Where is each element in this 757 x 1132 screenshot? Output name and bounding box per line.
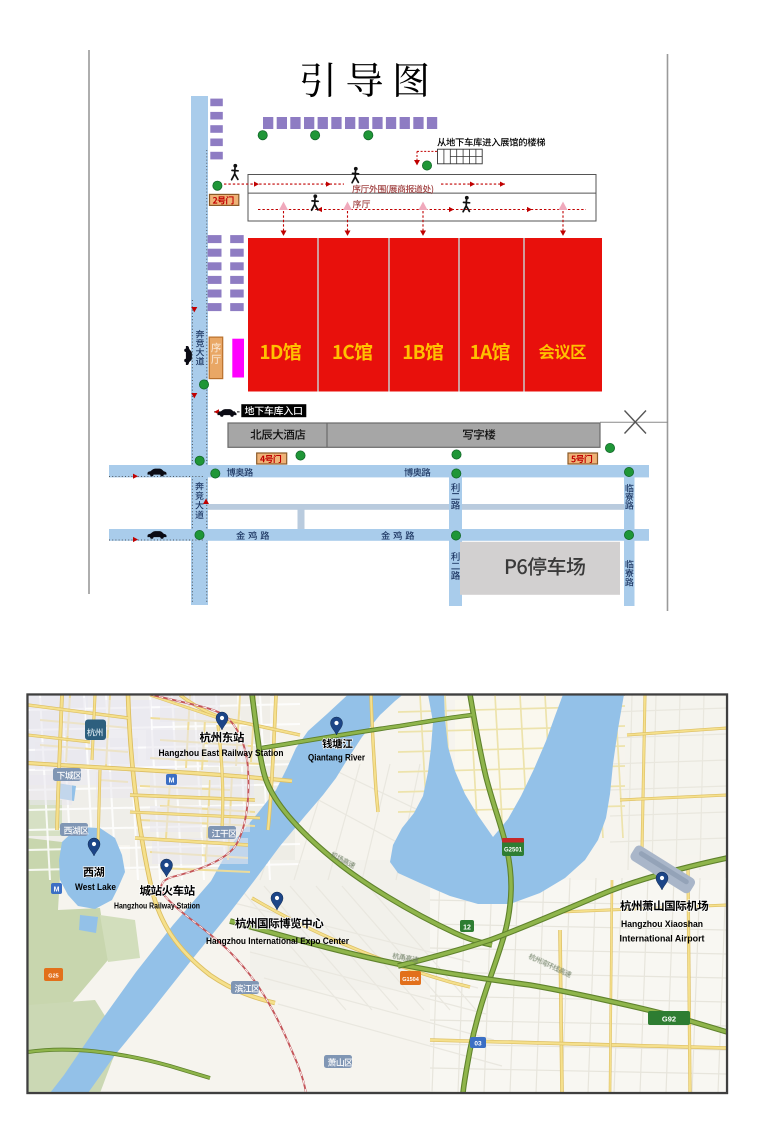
- svg-text:G2501: G2501: [504, 848, 523, 854]
- svg-text:12: 12: [463, 925, 471, 932]
- svg-text:Hangzhou Railway Station: Hangzhou Railway Station: [114, 901, 200, 911]
- svg-text:Qiantang River: Qiantang River: [308, 753, 365, 763]
- svg-text:03: 03: [474, 1041, 482, 1048]
- svg-text:International Airport: International Airport: [620, 934, 706, 945]
- svg-text:M: M: [54, 887, 60, 894]
- svg-text:G25: G25: [48, 974, 58, 980]
- svg-text:Hangzhou Xiaoshan: Hangzhou Xiaoshan: [621, 919, 703, 930]
- svg-text:Hangzhou International Expo Ce: Hangzhou International Expo Center: [206, 936, 349, 946]
- svg-text:M: M: [169, 778, 175, 785]
- svg-text:West Lake: West Lake: [75, 882, 116, 893]
- svg-text:G1504: G1504: [402, 977, 419, 983]
- svg-text:Hangzhou East Railway Station: Hangzhou East Railway Station: [159, 748, 284, 758]
- svg-text:G92: G92: [662, 1015, 676, 1024]
